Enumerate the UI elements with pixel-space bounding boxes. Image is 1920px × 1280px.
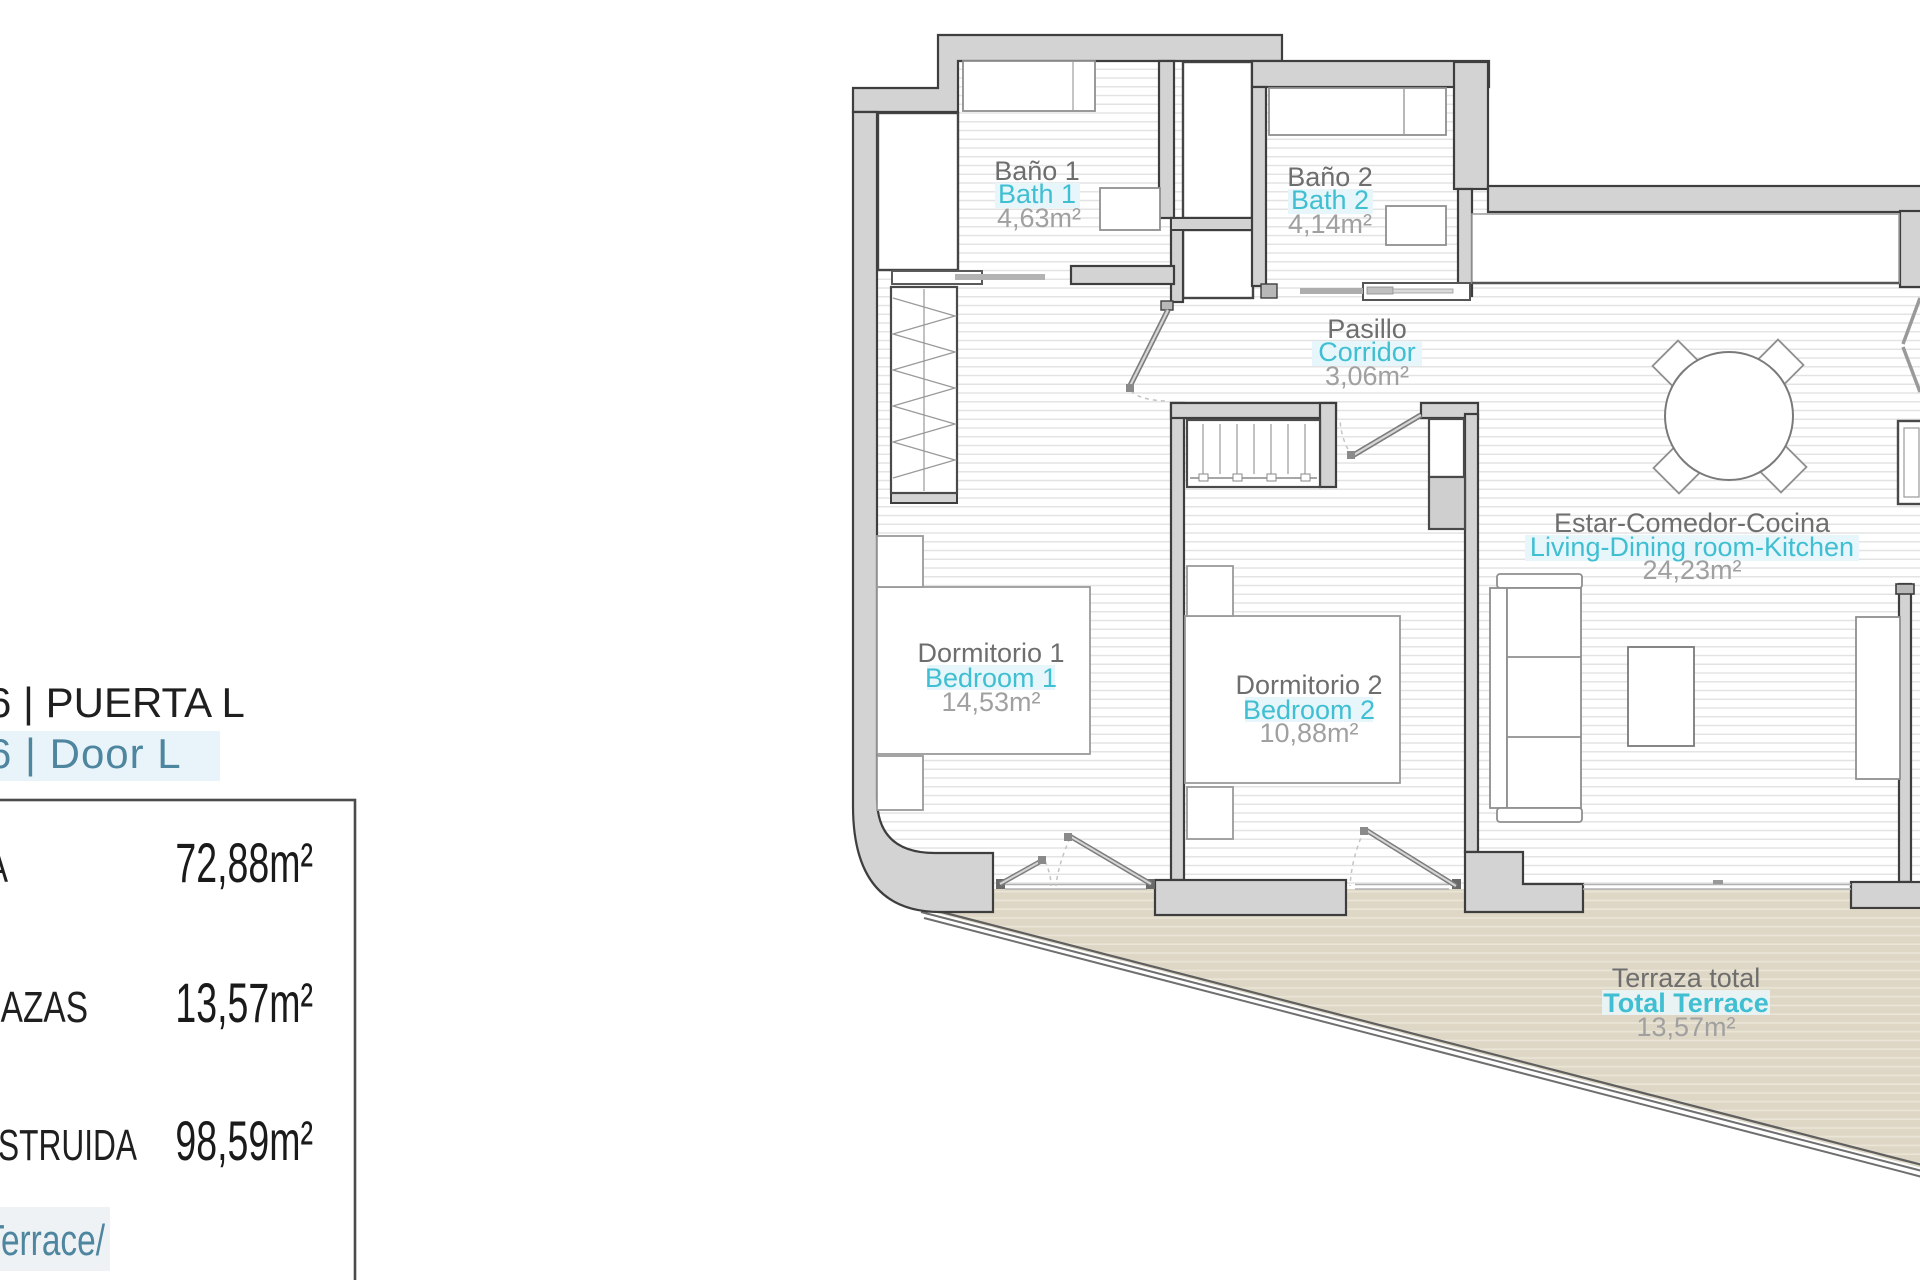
svg-text:72,88m²: 72,88m² xyxy=(175,833,313,895)
svg-text:SUPERFICIE ÚTIL TERRAZAS: SUPERFICIE ÚTIL TERRAZAS xyxy=(0,984,88,1032)
svg-text:6 | Door L: 6 | Door L xyxy=(0,730,182,777)
svg-text:4,14m²: 4,14m² xyxy=(1288,209,1372,239)
svg-text:Planos/Plans Total Terrace/: Planos/Plans Total Terrace/ xyxy=(0,1217,105,1265)
svg-text:4,63m²: 4,63m² xyxy=(997,203,1081,233)
svg-text:SUPERFICIE CONSTRUIDA: SUPERFICIE CONSTRUIDA xyxy=(0,1121,137,1170)
svg-text:14,53m²: 14,53m² xyxy=(941,687,1040,717)
svg-text:24,23m²: 24,23m² xyxy=(1642,555,1741,585)
svg-text:98,59m²: 98,59m² xyxy=(175,1111,313,1173)
svg-text:13,57m²: 13,57m² xyxy=(175,973,313,1035)
svg-text:10,88m²: 10,88m² xyxy=(1259,718,1358,748)
svg-text:6 | PUERTA L: 6 | PUERTA L xyxy=(0,679,245,726)
svg-text:13,57m²: 13,57m² xyxy=(1636,1012,1735,1042)
svg-text:3,06m²: 3,06m² xyxy=(1325,361,1409,391)
svg-text:SUPERFICIE ÚTIL VIVIENDA: SUPERFICIE ÚTIL VIVIENDA xyxy=(0,844,8,892)
